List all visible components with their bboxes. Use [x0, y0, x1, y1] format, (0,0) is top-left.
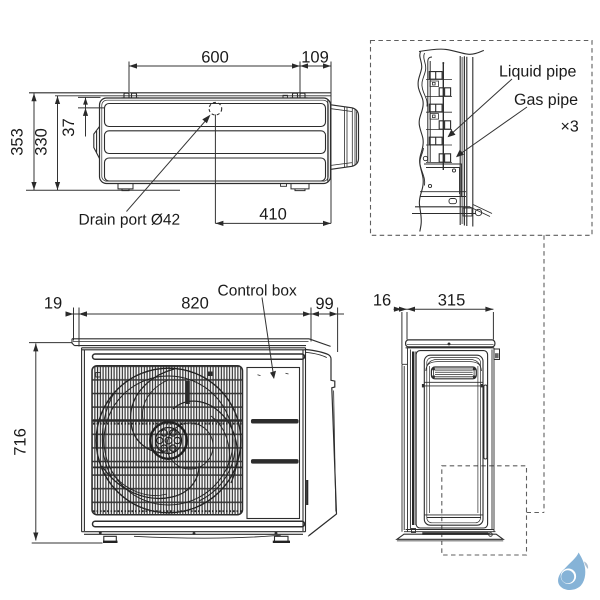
svg-text:315: 315	[438, 291, 466, 309]
svg-text:820: 820	[181, 294, 209, 312]
svg-text:716: 716	[12, 428, 30, 456]
svg-text:410: 410	[259, 205, 287, 223]
svg-text:600: 600	[201, 48, 229, 66]
svg-text:19: 19	[44, 294, 62, 312]
svg-text:Liquid pipe: Liquid pipe	[499, 64, 577, 81]
svg-text:353: 353	[9, 128, 27, 156]
svg-text:×3: ×3	[560, 119, 578, 136]
svg-text:Drain port Ø42: Drain port Ø42	[78, 212, 180, 229]
svg-text:109: 109	[301, 48, 329, 66]
svg-text:99: 99	[315, 295, 333, 313]
svg-text:330: 330	[33, 128, 51, 156]
svg-text:37: 37	[60, 118, 78, 136]
svg-text:Gas pipe: Gas pipe	[514, 92, 578, 109]
svg-text:Control box: Control box	[217, 283, 297, 300]
svg-text:16: 16	[373, 291, 391, 309]
